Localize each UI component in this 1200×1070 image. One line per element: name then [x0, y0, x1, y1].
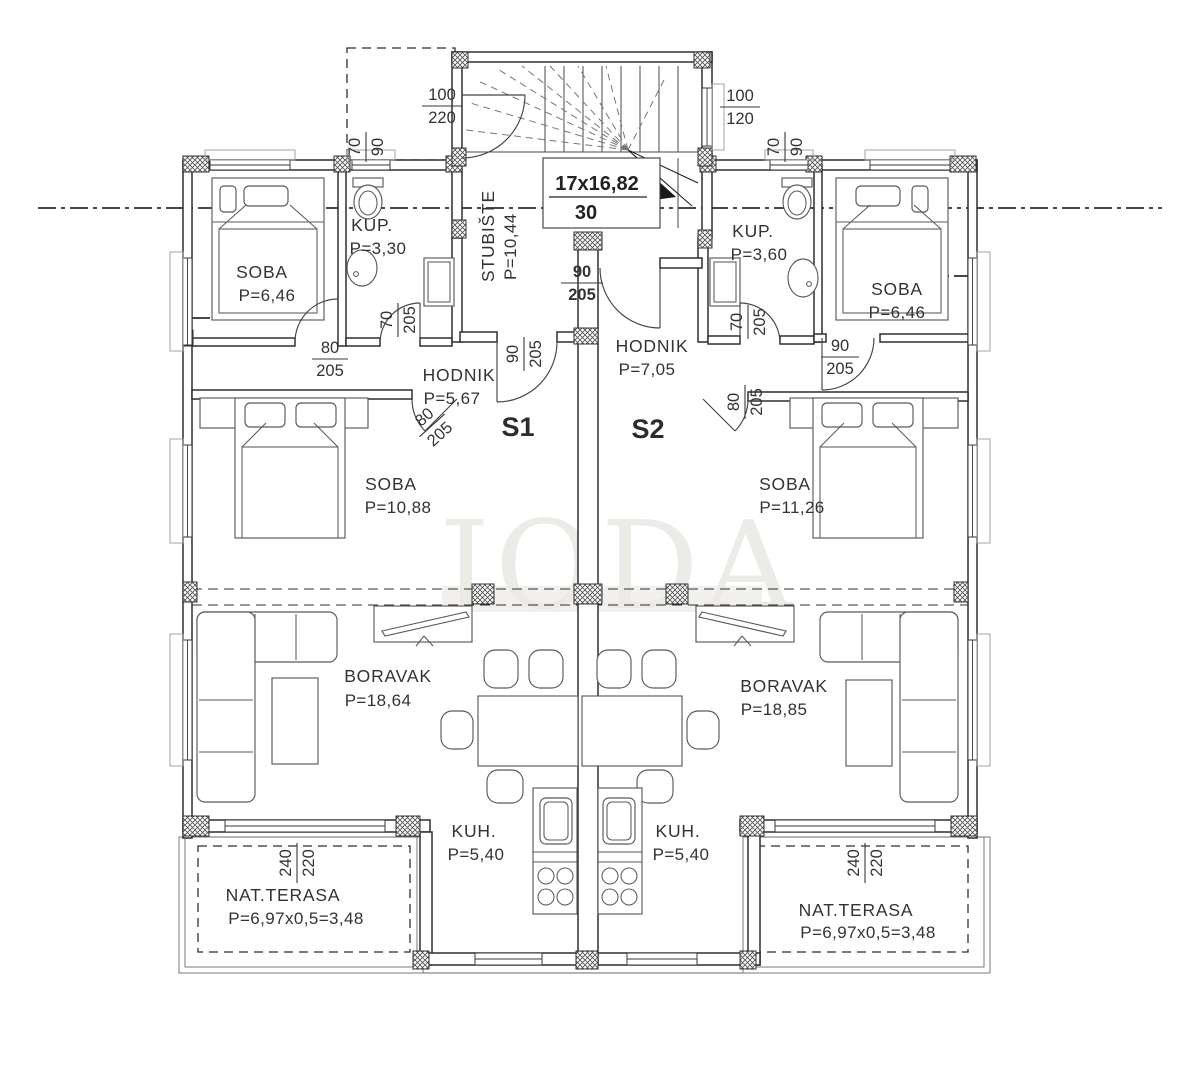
svg-text:P=11,26: P=11,26	[759, 498, 824, 517]
window	[183, 640, 192, 760]
wall-s2-hall	[698, 238, 708, 342]
svg-text:220: 220	[300, 849, 318, 877]
stair-steps-label: 17x16,82	[555, 173, 638, 195]
svg-text:100: 100	[726, 87, 754, 105]
wall-s2-kup	[814, 165, 822, 342]
dining-set-s1	[441, 650, 578, 803]
svg-text:220: 220	[428, 109, 456, 127]
svg-text:KUH.: KUH.	[655, 821, 700, 841]
stairwell-name: STUBIŠTE	[477, 190, 498, 282]
stairwell-label: STUBIŠTE P=10,44	[477, 190, 520, 282]
dim-terrace-left: 240220	[277, 843, 318, 883]
svg-text:80: 80	[412, 404, 438, 430]
wall-s1-a	[192, 338, 295, 346]
svg-text:P=6,97x0,5=3,48: P=6,97x0,5=3,48	[228, 909, 364, 928]
svg-text:NAT.TERASA: NAT.TERASA	[226, 885, 341, 905]
window	[968, 258, 977, 345]
dim-bath-door-left: 70205	[378, 303, 419, 337]
room-label-s2-boravak: BORAVAK P=18,85	[740, 676, 828, 719]
window	[352, 160, 390, 170]
svg-text:205: 205	[316, 362, 344, 380]
dim-terrace-right: 240220	[845, 843, 886, 883]
svg-text:P=6,46: P=6,46	[869, 303, 926, 322]
wall-s1-entry-a	[460, 332, 497, 342]
svg-text:HODNIK: HODNIK	[616, 336, 689, 356]
svg-text:205: 205	[527, 340, 545, 368]
wall-s1-kup	[338, 165, 346, 346]
room-label-s1-boravak: BORAVAK P=18,64	[344, 666, 432, 710]
svg-text:205: 205	[748, 388, 766, 416]
svg-text:240: 240	[845, 849, 863, 877]
stairwell-area: P=10,44	[501, 213, 520, 280]
svg-text:205: 205	[568, 286, 596, 304]
svg-text:P=3,60: P=3,60	[731, 245, 788, 264]
dim-soba-door-right: 80205	[725, 385, 766, 419]
wall-stair-left	[452, 52, 462, 238]
terrace-door	[775, 820, 935, 832]
room-label-s1-terasa: NAT.TERASA P=6,97x0,5=3,48	[226, 885, 364, 928]
window	[770, 160, 808, 170]
wall-kitchen-right	[748, 832, 760, 965]
kitchen-s1	[533, 788, 577, 914]
bed-double-s1	[200, 398, 368, 538]
sink-s2	[788, 259, 818, 297]
window	[210, 160, 290, 170]
svg-text:90: 90	[369, 138, 387, 156]
unit-label-s1: S1	[501, 412, 534, 442]
svg-text:BORAVAK: BORAVAK	[344, 666, 432, 686]
svg-text:90: 90	[788, 138, 806, 156]
window	[627, 953, 697, 965]
svg-text:P=7,05: P=7,05	[619, 360, 676, 379]
terrace-door	[225, 820, 385, 832]
dim-bath-window-right: 7090	[765, 132, 806, 162]
window	[702, 88, 712, 146]
svg-text:KUP.: KUP.	[351, 215, 393, 235]
room-label-s2-kup: KUP. P=3,60	[731, 221, 788, 264]
room-label-s2-terasa: NAT.TERASA P=6,97x0,5=3,48	[799, 900, 936, 942]
window	[968, 640, 977, 760]
window	[475, 953, 542, 965]
svg-text:220: 220	[868, 849, 886, 877]
svg-text:90: 90	[573, 263, 591, 281]
dim-stair-window: 100120	[720, 87, 760, 128]
wall-s2-soba-small	[880, 334, 968, 342]
svg-text:240: 240	[277, 849, 295, 877]
toilet-s1	[353, 178, 383, 219]
dim-soba-small-door-right: 90205	[821, 337, 859, 378]
window	[870, 160, 950, 170]
wall-s1-c	[420, 338, 452, 346]
room-label-s1-soba: SOBA P=10,88	[365, 474, 432, 517]
window	[968, 445, 977, 537]
svg-text:70: 70	[346, 138, 364, 156]
wall-kitchen-left	[420, 832, 432, 965]
room-label-s1-hodnik: HODNIK P=5,67	[423, 365, 496, 408]
svg-text:KUH.: KUH.	[451, 821, 496, 841]
svg-text:70: 70	[765, 138, 783, 156]
dining-set-s2	[582, 650, 719, 803]
coffee-table-s1	[272, 678, 318, 764]
svg-text:205: 205	[826, 360, 854, 378]
svg-text:70: 70	[728, 313, 746, 331]
window	[183, 258, 192, 345]
svg-text:SOBA: SOBA	[759, 474, 811, 494]
wall-s2-a	[708, 336, 740, 344]
wall-s2-b	[780, 336, 814, 344]
svg-text:P=5,67: P=5,67	[424, 389, 481, 408]
svg-text:90: 90	[504, 345, 522, 363]
svg-text:90: 90	[831, 337, 849, 355]
svg-text:205: 205	[401, 306, 419, 334]
bed-double-s2	[790, 398, 958, 538]
wall-s1-b	[346, 338, 380, 346]
stair-up-dashes	[466, 66, 664, 150]
tv-stand-s1	[374, 606, 472, 646]
floor-plan-canvas: JODA	[0, 0, 1200, 1070]
svg-text:SOBA: SOBA	[365, 474, 417, 494]
svg-text:P=3,30: P=3,30	[350, 239, 407, 258]
svg-text:70: 70	[378, 311, 396, 329]
svg-text:P=10,88: P=10,88	[365, 498, 432, 517]
svg-text:P=5,40: P=5,40	[653, 845, 710, 864]
wall-s2-entry	[660, 258, 702, 268]
stair-width-label: 30	[575, 202, 597, 224]
toilet-s2	[782, 178, 812, 219]
svg-text:SOBA: SOBA	[871, 279, 923, 299]
dim-entry-s1: 90205	[504, 337, 545, 371]
door-entry-s2	[600, 268, 660, 328]
room-label-s2-kuh: KUH. P=5,40	[653, 821, 710, 864]
svg-text:80: 80	[321, 339, 339, 357]
svg-text:P=6,46: P=6,46	[239, 286, 296, 305]
svg-text:80: 80	[725, 393, 743, 411]
wall-s2-c	[814, 334, 826, 342]
room-label-s1-kup: KUP. P=3,30	[350, 215, 407, 258]
room-label-s1-kuh: KUH. P=5,40	[448, 821, 505, 864]
dim-bath-door-right: 70205	[728, 305, 769, 339]
tv-stand-s2	[696, 606, 794, 646]
svg-text:KUP.: KUP.	[732, 221, 774, 241]
svg-text:P=18,64: P=18,64	[345, 691, 412, 710]
svg-text:P=5,40: P=5,40	[448, 845, 505, 864]
wall-stair-top	[452, 52, 712, 62]
svg-text:BORAVAK: BORAVAK	[740, 676, 828, 696]
svg-text:NAT.TERASA: NAT.TERASA	[799, 900, 914, 920]
svg-text:100: 100	[428, 86, 456, 104]
coffee-table-s2	[846, 680, 892, 766]
svg-text:SOBA: SOBA	[236, 262, 288, 282]
svg-text:P=6,97x0,5=3,48: P=6,97x0,5=3,48	[800, 923, 936, 942]
door-stairwell	[462, 95, 525, 158]
svg-text:P=18,85: P=18,85	[741, 700, 808, 719]
svg-text:HODNIK: HODNIK	[423, 365, 496, 385]
svg-text:120: 120	[726, 110, 754, 128]
dim-bath-window-left: 7090	[346, 132, 387, 162]
unit-label-s2: S2	[631, 414, 664, 444]
room-label-s2-hodnik: HODNIK P=7,05	[616, 336, 689, 379]
svg-text:205: 205	[751, 308, 769, 336]
kitchen-s2	[598, 788, 642, 914]
floor-plan-svg: JODA	[0, 0, 1200, 1070]
window	[183, 445, 192, 537]
